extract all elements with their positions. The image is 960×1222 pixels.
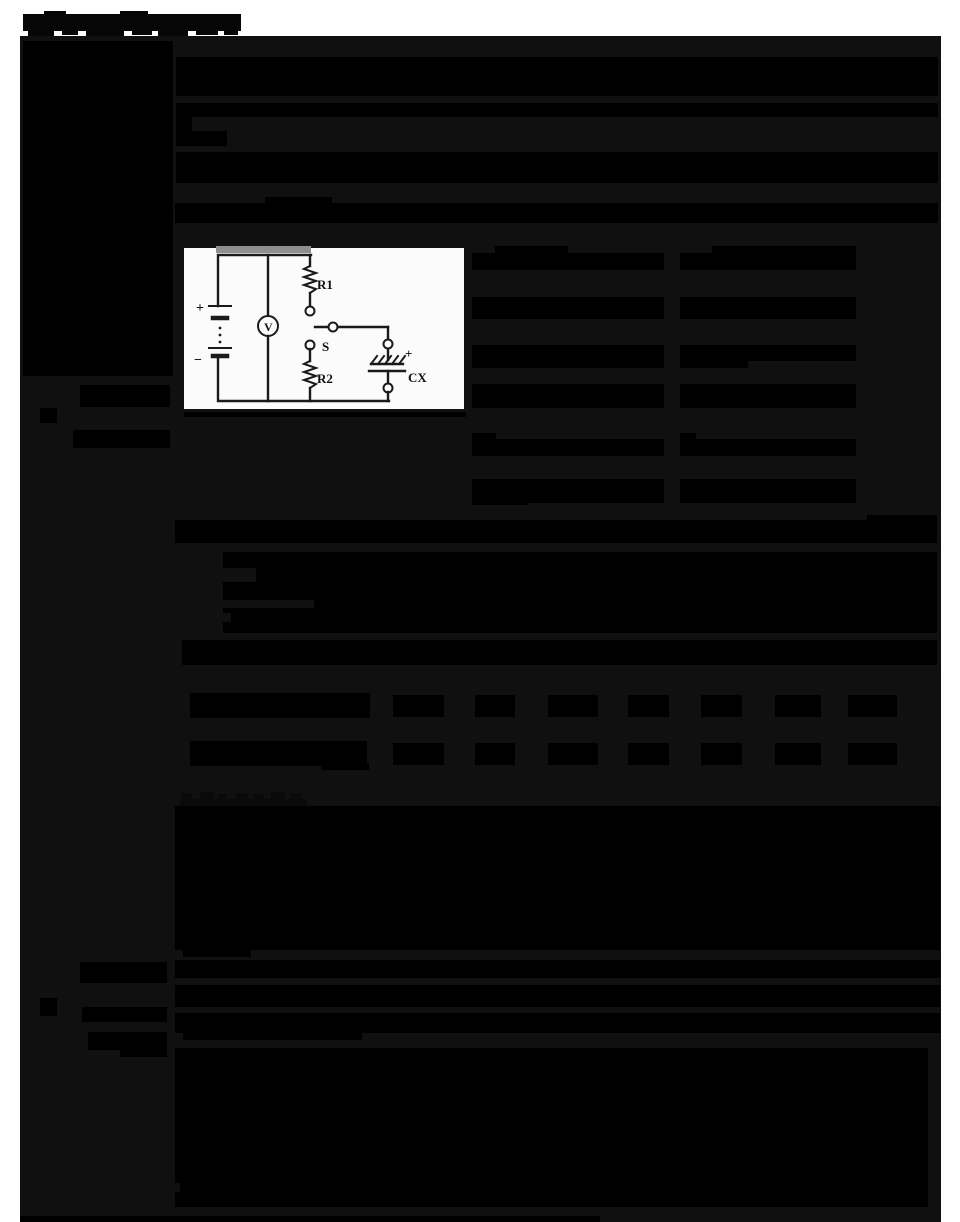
- left-margin-line: [80, 385, 170, 407]
- paragraph-block: [176, 57, 938, 96]
- redacted-block: [120, 11, 148, 14]
- switch-terminal: [329, 323, 338, 332]
- table-cell-fragment: [321, 763, 369, 770]
- redacted-block: [200, 792, 214, 799]
- data-table-cell: [848, 695, 897, 717]
- battery-minus-label: −: [194, 353, 202, 368]
- data-table-cell: [775, 695, 821, 717]
- resistor-r1-icon: [304, 266, 316, 293]
- data-table-cell: [393, 743, 444, 765]
- paragraph-block: [176, 103, 938, 117]
- left-margin-line: [73, 430, 170, 448]
- top-wire: [218, 255, 311, 306]
- data-table-cell: [548, 743, 598, 765]
- list-marker-gap: [223, 613, 231, 622]
- redacted-block: [254, 794, 264, 799]
- data-table-cell: [775, 743, 821, 765]
- battery-icon: [209, 306, 231, 356]
- paragraph-block: [175, 203, 938, 223]
- data-table-cell: [701, 695, 742, 717]
- paragraph-block: [175, 1048, 928, 1207]
- redacted-block: [28, 31, 54, 36]
- right-table-cell: [680, 253, 856, 270]
- list-marker-gap: [223, 568, 256, 582]
- capacitor-terminal: [384, 340, 393, 349]
- right-table-cell: [472, 253, 664, 270]
- right-table-cell: [472, 297, 664, 319]
- redacted-block: [86, 29, 124, 36]
- section-bullet-square: [40, 408, 57, 423]
- circuit-diagram: + − V R1 S R2: [184, 248, 464, 409]
- list-marker-gap: [223, 600, 314, 608]
- voltmeter-label: V: [264, 320, 273, 334]
- redacted-block: [132, 31, 152, 35]
- capacitor-plus-label: +: [405, 346, 412, 361]
- redacted-block: [182, 793, 192, 799]
- paragraph-block: [223, 552, 937, 633]
- data-table-cell: [848, 743, 897, 765]
- right-table-cell: [472, 439, 664, 456]
- redacted-block: [44, 11, 66, 14]
- circuit-svg: + − V R1 S R2: [184, 248, 464, 409]
- right-table-cell: [680, 384, 856, 408]
- paragraph-stub: [176, 117, 192, 131]
- paragraph-block: [175, 985, 940, 1007]
- paragraph-block: [175, 1013, 940, 1033]
- rule-under-figure: [184, 412, 466, 417]
- right-table-cell: [680, 345, 856, 361]
- paragraph-block: [175, 806, 940, 950]
- resistor-r1-label: R1: [317, 277, 333, 292]
- paragraph-block: [175, 960, 940, 978]
- right-table-cell: [680, 479, 856, 503]
- paragraph-block: [182, 640, 937, 665]
- scanned-document-page: { "page": { "width": 960, "height": 1222…: [0, 0, 960, 1222]
- capacitor-label: CX: [408, 370, 427, 385]
- section-bullet-square: [40, 998, 57, 1016]
- left-margin-block: [23, 41, 173, 376]
- resistor-r2-label: R2: [317, 371, 333, 386]
- page-title-blob: [23, 14, 241, 31]
- scan-smudge: [216, 246, 311, 253]
- table-cell-fragment: [680, 361, 748, 368]
- left-margin-line: [120, 1048, 167, 1057]
- right-table-cell: [680, 297, 856, 319]
- redacted-block: [158, 30, 188, 36]
- right-table-cell: [680, 439, 856, 456]
- table-cell-fragment: [472, 498, 528, 505]
- right-table-cell: [472, 345, 664, 368]
- left-margin-line: [82, 1007, 167, 1022]
- redacted-block: [271, 792, 285, 799]
- redacted-block: [236, 793, 248, 799]
- switch-terminal: [306, 307, 315, 316]
- data-table-row-header: [190, 693, 370, 718]
- data-table-cell: [548, 695, 598, 717]
- battery-plus-label: +: [196, 301, 204, 316]
- left-margin-line: [80, 962, 167, 983]
- data-table-cell: [475, 743, 515, 765]
- right-table-cell: [472, 384, 664, 408]
- redacted-block: [218, 794, 226, 799]
- resistor-r2-icon: [304, 361, 316, 388]
- bottom-wire: [218, 356, 389, 401]
- paragraph-stub: [183, 1033, 362, 1040]
- paragraph-block: [175, 520, 937, 543]
- data-table-cell: [701, 743, 742, 765]
- redacted-block: [196, 31, 218, 35]
- switch-label: S: [322, 339, 329, 354]
- paragraph-block: [176, 152, 938, 183]
- data-table-cell: [628, 695, 669, 717]
- redacted-block: [62, 31, 78, 35]
- paragraph-stub: [183, 948, 251, 957]
- page-title: [0, 0, 960, 40]
- paragraph-stub: [176, 131, 227, 146]
- data-table-cell: [393, 695, 444, 717]
- redacted-block: [224, 31, 238, 35]
- redaction-layer: [0, 0, 960, 1222]
- redacted-block: [291, 794, 301, 799]
- list-marker-gap: [175, 1183, 180, 1192]
- data-table-cell: [628, 743, 669, 765]
- data-table-cell: [475, 695, 515, 717]
- page-edge-shadow: [20, 1216, 600, 1222]
